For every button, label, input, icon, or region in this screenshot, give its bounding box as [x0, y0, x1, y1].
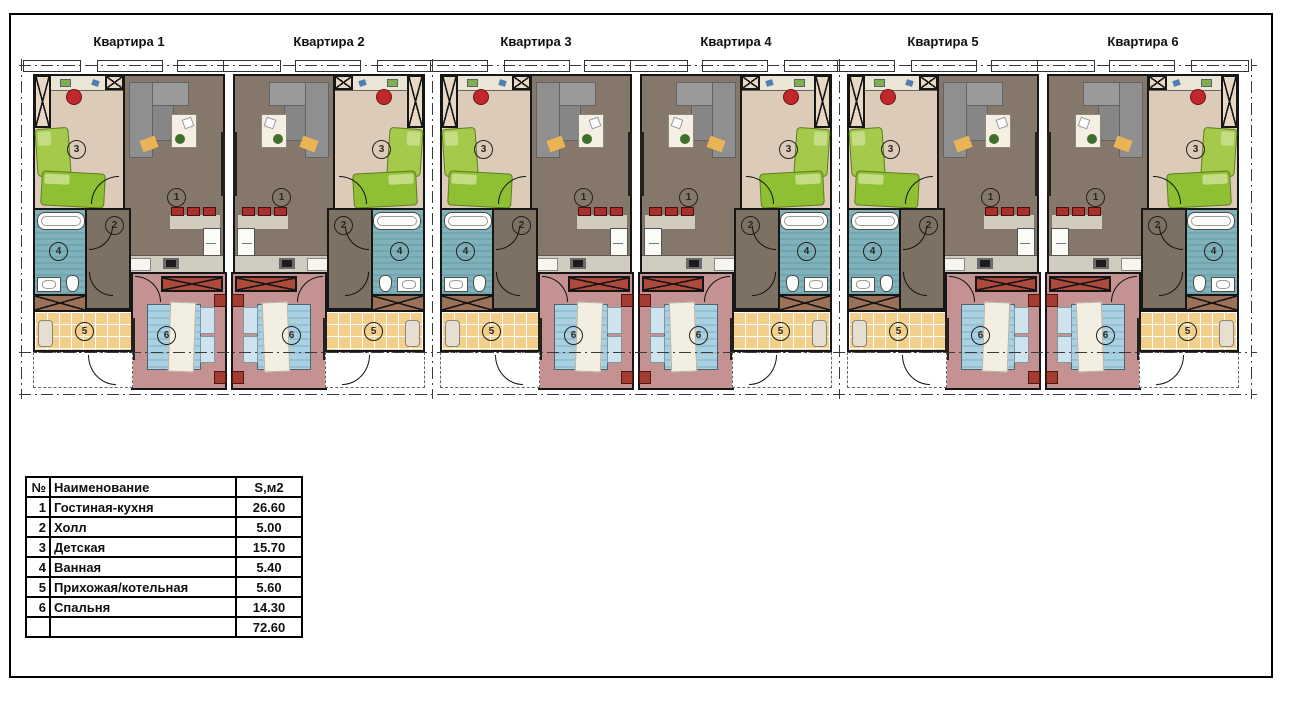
door-arc [542, 276, 568, 302]
fridge [644, 228, 662, 258]
room-number: 6 [157, 326, 176, 345]
desk-chair [1190, 89, 1206, 105]
room-kids: 3 [847, 74, 939, 210]
kitchen-counter [235, 255, 333, 272]
row-area: 26.60 [236, 497, 302, 517]
axis-line-bottom [19, 394, 1257, 395]
apartment-label: Квартира 1 [29, 29, 229, 55]
nightstand [232, 294, 244, 307]
room-living-kitchen: 1 [937, 74, 1039, 274]
room-hall: 2 [899, 208, 945, 310]
wardrobe-icon [235, 276, 297, 292]
row-num: 1 [26, 497, 50, 517]
row-num: 4 [26, 557, 50, 577]
wardrobe-icon [642, 276, 704, 292]
entrance-door-arc [495, 355, 523, 385]
apartment-plan: 3 1 [229, 70, 429, 390]
room-bedroom: 6 [538, 272, 634, 390]
kids-bed [386, 127, 423, 177]
bathroom-sink [397, 277, 421, 292]
room-number: 1 [167, 188, 186, 207]
room-number: 5 [482, 322, 501, 341]
coffee-table [1075, 114, 1101, 148]
apartment-plan: 3 1 [1043, 70, 1243, 390]
axis-line-top [19, 65, 1257, 66]
door-arc [89, 272, 113, 296]
kitchen-counter [125, 255, 223, 272]
room-hall: 2 [492, 208, 538, 310]
notebook-icon [1172, 79, 1181, 87]
door-mat [1219, 320, 1234, 347]
apartment-label: Квартира 3 [436, 29, 636, 55]
bar-stool [242, 207, 255, 216]
notebook-icon [498, 79, 507, 87]
door-mat [852, 320, 867, 347]
apartment-label: Квартира 5 [843, 29, 1043, 55]
kids-bed [793, 127, 830, 177]
room-kids: 3 [333, 74, 425, 210]
bar-stool [258, 207, 271, 216]
floor-plan: Квартира 1 3 [29, 29, 1243, 390]
wardrobe-icon [919, 75, 938, 90]
nightstand [621, 294, 633, 307]
apartment-label: Квартира 2 [229, 29, 429, 55]
nightstand [621, 371, 633, 384]
balcony-parapet [784, 60, 842, 72]
row-area: 15.70 [236, 537, 302, 557]
room-number: 2 [105, 216, 124, 235]
nightstand [639, 371, 651, 384]
room-number: 3 [474, 140, 493, 159]
nightstand [1046, 371, 1058, 384]
room-number: 1 [1086, 188, 1105, 207]
room-number: 4 [797, 242, 816, 261]
axis-line-gap1 [432, 59, 433, 399]
room-legend-table: № Наименование S,м2 1 Гостиная-кухня 26.… [25, 476, 303, 638]
wardrobe-icon [407, 75, 424, 128]
legend-header-area: S,м2 [236, 477, 302, 497]
pillow [650, 307, 665, 334]
entrance-porch [33, 352, 133, 388]
room-number: 5 [1178, 322, 1197, 341]
bar-stool [203, 207, 216, 216]
room-number: 6 [1096, 326, 1115, 345]
bar-stool [1072, 207, 1085, 216]
fridge [1051, 228, 1069, 258]
room-bathroom: 4 [778, 208, 832, 296]
row-name: Гостиная-кухня [50, 497, 236, 517]
room-kids: 3 [440, 74, 532, 210]
plant-icon [1087, 134, 1097, 144]
door-arc [903, 272, 927, 296]
window-mark [640, 132, 644, 196]
stove [977, 258, 993, 269]
room-number: 2 [512, 216, 531, 235]
row-area: 5.60 [236, 577, 302, 597]
door-mat [405, 320, 420, 347]
entrance-porch [1139, 352, 1239, 388]
plant-icon [175, 134, 185, 144]
bar-stool [578, 207, 591, 216]
room-number: 4 [49, 242, 68, 261]
room-entry-boiler: 5 [325, 310, 425, 352]
bar-stool [681, 207, 694, 216]
room-number: 4 [863, 242, 882, 261]
kids-bed [848, 127, 885, 177]
row-num: 2 [26, 517, 50, 537]
kids-bed [34, 127, 71, 177]
bar-stool [274, 207, 287, 216]
entrance-door-arc [342, 355, 370, 385]
table-row: 1 Гостиная-кухня 26.60 [26, 497, 302, 517]
room-bedroom: 6 [131, 272, 227, 390]
door-arc [1159, 272, 1183, 296]
pillow [200, 307, 215, 334]
row-name: Спальня [50, 597, 236, 617]
room-bedroom: 6 [945, 272, 1041, 390]
stove [1093, 258, 1109, 269]
row-area: 5.00 [236, 517, 302, 537]
bar-stool [649, 207, 662, 216]
table-row: 4 Ванная 5.40 [26, 557, 302, 577]
wardrobe-icon [975, 276, 1037, 292]
door-arc [135, 276, 161, 302]
row-num: 5 [26, 577, 50, 597]
bar-stool [1001, 207, 1014, 216]
room-living-kitchen: 1 [640, 74, 742, 274]
wardrobe-icon [161, 276, 223, 292]
plant-icon [989, 134, 999, 144]
balcony-parapet [430, 60, 488, 72]
window-mark [1035, 132, 1039, 196]
entrance-porch [732, 352, 832, 388]
wardrobe-icon [441, 75, 458, 128]
desk-chair [66, 89, 82, 105]
kids-bed [1200, 127, 1237, 177]
apartment-plan: 3 1 [636, 70, 836, 390]
door-arc [752, 272, 776, 296]
door-mat [812, 320, 827, 347]
room-number: 1 [679, 188, 698, 207]
room-entry-boiler: 5 [732, 310, 832, 352]
door-arc [297, 276, 323, 302]
wardrobe-icon [1148, 75, 1167, 90]
stove [686, 258, 702, 269]
room-number: 2 [334, 216, 353, 235]
room-number: 4 [1204, 242, 1223, 261]
pillow [1057, 336, 1072, 363]
apartment-label: Квартира 4 [636, 29, 836, 55]
room-living-kitchen: 1 [1047, 74, 1149, 274]
wardrobe-icon [568, 276, 630, 292]
room-number: 6 [689, 326, 708, 345]
room-hall: 2 [1141, 208, 1187, 310]
row-num: 3 [26, 537, 50, 557]
desk-chair [880, 89, 896, 105]
table-row: 2 Холл 5.00 [26, 517, 302, 537]
balcony-parapet [1109, 60, 1175, 72]
balcony-parapet [702, 60, 768, 72]
room-bathroom: 4 [440, 208, 494, 296]
balcony-parapet [504, 60, 570, 72]
stove [279, 258, 295, 269]
notebook-icon [91, 79, 100, 87]
balcony-parapet [377, 60, 435, 72]
balcony-parapet [23, 60, 81, 72]
room-number: 3 [1186, 140, 1205, 159]
room-number: 4 [456, 242, 475, 261]
paper-icon [1078, 117, 1091, 130]
apartment: Квартира 3 3 [436, 29, 636, 390]
room-entry-boiler: 5 [1139, 310, 1239, 352]
table-row: 5 Прихожая/котельная 5.60 [26, 577, 302, 597]
room-bedroom: 6 [231, 272, 327, 390]
room-number: 5 [889, 322, 908, 341]
pillow [607, 307, 622, 334]
coffee-table [578, 114, 604, 148]
desk-pad-icon [1201, 79, 1212, 87]
toilet [66, 275, 79, 292]
apartment: Квартира 2 3 [229, 29, 429, 390]
notebook-icon [358, 79, 367, 87]
room-entry-boiler: 5 [847, 310, 947, 352]
room-number: 5 [75, 322, 94, 341]
entrance-door-arc [88, 355, 116, 385]
nightstand [214, 371, 226, 384]
paper-icon [671, 117, 684, 130]
nightstand [214, 294, 226, 307]
room-kids: 3 [1147, 74, 1239, 210]
table-row: 3 Детская 15.70 [26, 537, 302, 557]
bar-stool [985, 207, 998, 216]
balcony-parapet [295, 60, 361, 72]
fridge [610, 228, 628, 258]
plant-icon [680, 134, 690, 144]
bathtub [780, 212, 828, 230]
axis-line-terrace [19, 352, 1257, 353]
paper-icon [996, 117, 1009, 130]
total-num-cell [26, 617, 50, 637]
coffee-table [171, 114, 197, 148]
apartment-label: Квартира 6 [1043, 29, 1243, 55]
window-mark [628, 132, 632, 196]
room-kids: 3 [740, 74, 832, 210]
room-bathroom: 4 [847, 208, 901, 296]
nightstand [1028, 294, 1040, 307]
kitchen-counter [939, 255, 1037, 272]
room-number: 2 [919, 216, 938, 235]
wardrobe-icon [848, 75, 865, 128]
bar-stool [187, 207, 200, 216]
bar-stool [1088, 207, 1101, 216]
desk-chair [783, 89, 799, 105]
desk-pad-icon [794, 79, 805, 87]
wardrobe-icon [1049, 276, 1111, 292]
wardrobe-icon [741, 75, 760, 90]
room-bathroom: 4 [1185, 208, 1239, 296]
toilet [379, 275, 392, 292]
door-arc [949, 276, 975, 302]
fridge [237, 228, 255, 258]
room-number: 6 [564, 326, 583, 345]
toilet [786, 275, 799, 292]
apartment-plan: 3 1 [843, 70, 1043, 390]
door-arc [496, 272, 520, 296]
room-kids: 3 [33, 74, 125, 210]
desk-pad-icon [467, 79, 478, 87]
balcony-parapet [630, 60, 688, 72]
window-mark [221, 132, 225, 196]
entrance-porch [325, 352, 425, 388]
toilet [880, 275, 893, 292]
bathroom-sink [804, 277, 828, 292]
pillow [243, 307, 258, 334]
room-number: 3 [67, 140, 86, 159]
bar-stool [1056, 207, 1069, 216]
drawing-frame: Квартира 1 3 [9, 13, 1273, 678]
pillow [607, 336, 622, 363]
wardrobe-icon [814, 75, 831, 128]
fridge [1017, 228, 1035, 258]
desk-pad-icon [874, 79, 885, 87]
stove [570, 258, 586, 269]
coffee-table [985, 114, 1011, 148]
bathtub [373, 212, 421, 230]
row-num: 6 [26, 597, 50, 617]
legend-header-name: Наименование [50, 477, 236, 497]
room-number: 2 [741, 216, 760, 235]
notebook-icon [765, 79, 774, 87]
bar-stool [171, 207, 184, 216]
apartment-plan: 3 1 [436, 70, 636, 390]
room-number: 6 [282, 326, 301, 345]
kitchen-counter [642, 255, 740, 272]
notebook-icon [905, 79, 914, 87]
legend-header-num: № [26, 477, 50, 497]
room-hall: 2 [734, 208, 780, 310]
room-number: 5 [364, 322, 383, 341]
balcony-parapet [1191, 60, 1249, 72]
room-living-kitchen: 1 [530, 74, 632, 274]
row-name: Холл [50, 517, 236, 537]
wardrobe-icon [1221, 75, 1238, 128]
wardrobe-icon [512, 75, 531, 90]
balcony-parapet [911, 60, 977, 72]
kids-bed [441, 127, 478, 177]
pillow [1014, 307, 1029, 334]
bathroom-sink [851, 277, 875, 292]
fridge [203, 228, 221, 258]
room-number: 3 [779, 140, 798, 159]
pillow [1014, 336, 1029, 363]
room-bedroom: 6 [638, 272, 734, 390]
pillow [1057, 307, 1072, 334]
room-number: 5 [771, 322, 790, 341]
pillow [200, 336, 215, 363]
door-mat [445, 320, 460, 347]
plant-icon [582, 134, 592, 144]
room-hall: 2 [85, 208, 131, 310]
room-bathroom: 4 [33, 208, 87, 296]
bathroom-sink [1211, 277, 1235, 292]
room-living-kitchen: 1 [123, 74, 225, 274]
table-row: 6 Спальня 14.30 [26, 597, 302, 617]
apartment: Квартира 4 3 [636, 29, 836, 390]
desk-pad-icon [387, 79, 398, 87]
balcony-parapet [1037, 60, 1095, 72]
apartment: Квартира 6 3 [1043, 29, 1243, 390]
bar-stool [1017, 207, 1030, 216]
paper-icon [264, 117, 277, 130]
bathtub [851, 212, 899, 230]
desk-pad-icon [60, 79, 71, 87]
window-mark [1047, 132, 1051, 196]
room-number: 4 [390, 242, 409, 261]
balcony-parapet [223, 60, 281, 72]
apartment: Квартира 5 3 [843, 29, 1043, 390]
apartment: Квартира 1 3 [29, 29, 229, 390]
entrance-door-arc [902, 355, 930, 385]
legend-tbody: № Наименование S,м2 1 Гостиная-кухня 26.… [26, 477, 302, 637]
nightstand [639, 294, 651, 307]
wardrobe-icon [105, 75, 124, 90]
pillow [243, 336, 258, 363]
door-mat [38, 320, 53, 347]
room-number: 2 [1148, 216, 1167, 235]
row-area: 14.30 [236, 597, 302, 617]
entrance-porch [440, 352, 540, 388]
balcony-parapet [837, 60, 895, 72]
room-bathroom: 4 [371, 208, 425, 296]
coffee-table [668, 114, 694, 148]
room-number: 1 [272, 188, 291, 207]
legend-total-row: 72.60 [26, 617, 302, 637]
kitchen-counter [532, 255, 630, 272]
door-arc [345, 272, 369, 296]
row-name: Прихожая/котельная [50, 577, 236, 597]
room-number: 1 [574, 188, 593, 207]
room-number: 6 [971, 326, 990, 345]
paper-icon [182, 117, 195, 130]
kitchen-counter [1049, 255, 1147, 272]
door-arc [704, 276, 730, 302]
room-living-kitchen: 1 [233, 74, 335, 274]
wardrobe-icon [334, 75, 353, 90]
plant-icon [273, 134, 283, 144]
room-number: 3 [881, 140, 900, 159]
nightstand [232, 371, 244, 384]
axis-line-right [1251, 59, 1252, 399]
bathroom-sink [37, 277, 61, 292]
axis-line-left [21, 59, 22, 399]
paper-icon [589, 117, 602, 130]
bathroom-sink [444, 277, 468, 292]
axis-line-gap2 [839, 59, 840, 399]
room-bedroom: 6 [1045, 272, 1141, 390]
apartment-plan: 3 1 [29, 70, 229, 390]
bathtub [37, 212, 85, 230]
room-entry-boiler: 5 [33, 310, 133, 352]
entrance-door-arc [1156, 355, 1184, 385]
toilet [473, 275, 486, 292]
coffee-table [261, 114, 287, 148]
bar-stool [594, 207, 607, 216]
room-number: 3 [372, 140, 391, 159]
window-mark [233, 132, 237, 196]
desk-chair [473, 89, 489, 105]
entrance-porch [847, 352, 947, 388]
nightstand [1046, 294, 1058, 307]
